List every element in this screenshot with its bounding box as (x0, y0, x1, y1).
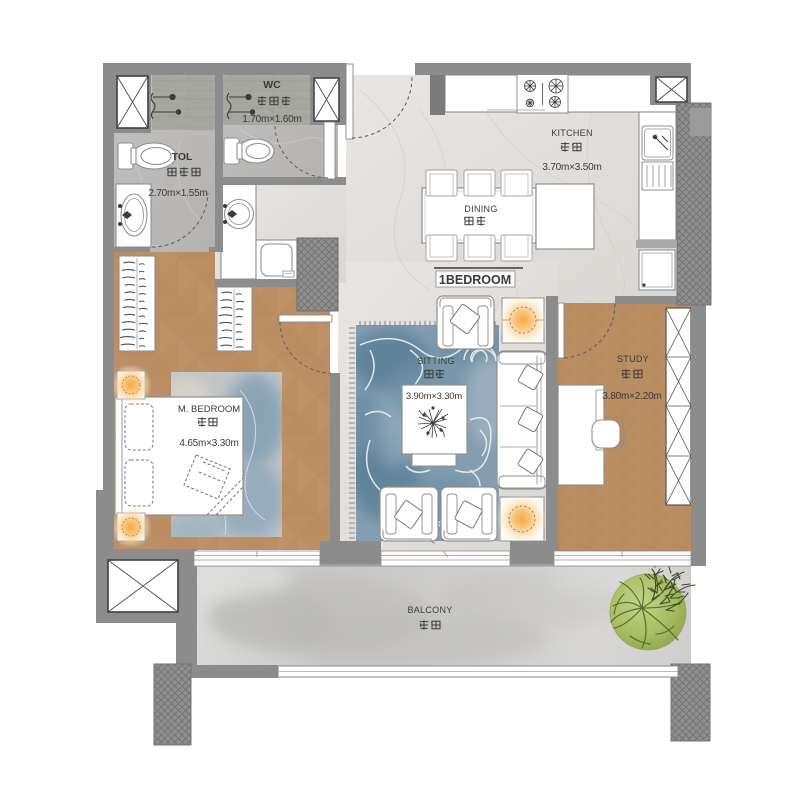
svg-text:1.70m×1.60m: 1.70m×1.60m (242, 114, 301, 125)
svg-text:M. BEDROOM: M. BEDROOM (178, 404, 240, 415)
svg-text:3.90m×3.30m: 3.90m×3.30m (406, 391, 462, 402)
svg-text:DINING: DINING (464, 204, 497, 214)
svg-text:2.70m×1.55m: 2.70m×1.55m (148, 188, 207, 199)
svg-text:3.80m×2.20m: 3.80m×2.20m (602, 391, 661, 402)
svg-text:3.70m×3.50m: 3.70m×3.50m (542, 162, 601, 173)
svg-text:BALCONY: BALCONY (407, 605, 452, 615)
svg-text:STUDY: STUDY (617, 354, 649, 364)
svg-text:1BEDROOM: 1BEDROOM (439, 273, 511, 287)
svg-text:WC: WC (263, 79, 281, 91)
svg-text:4.65m×3.30m: 4.65m×3.30m (179, 438, 238, 449)
svg-text:SITTING: SITTING (417, 356, 455, 366)
svg-text:KITCHEN: KITCHEN (551, 128, 593, 138)
svg-text:TOL: TOL (172, 151, 193, 163)
